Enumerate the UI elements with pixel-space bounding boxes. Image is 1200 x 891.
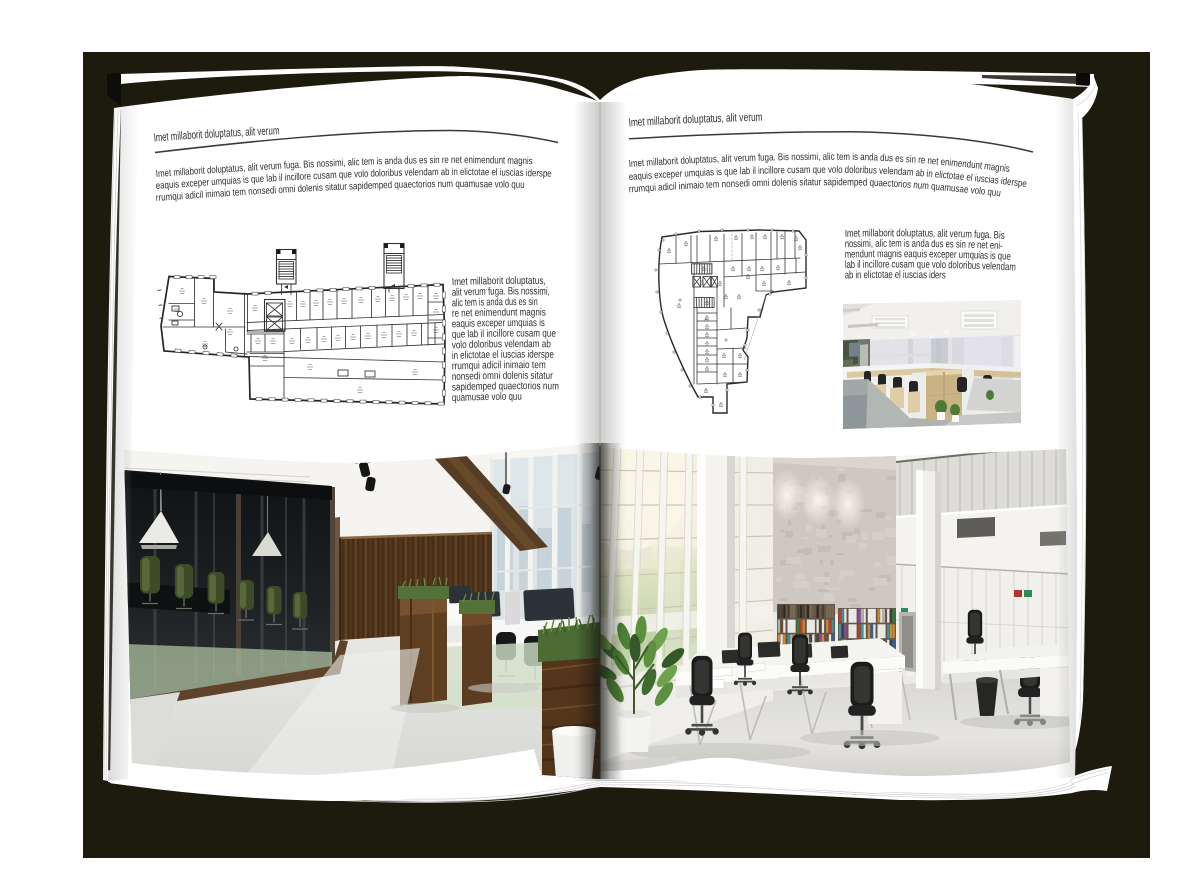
svg-text:ab in elictotae el iuscias ide: ab in elictotae el iuscias iders	[845, 269, 946, 282]
svg-text:quamusae volo quu: quamusae volo quu	[452, 391, 522, 404]
